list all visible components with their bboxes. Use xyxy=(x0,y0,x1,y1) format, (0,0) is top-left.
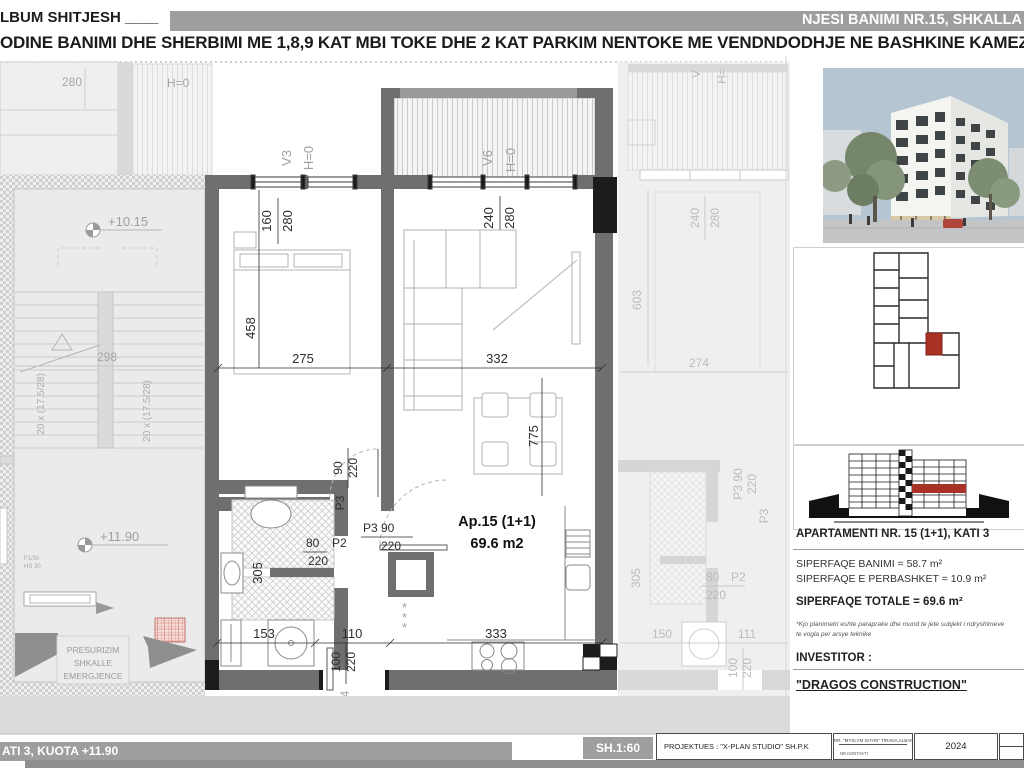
footer-designer: PROJEKTUES : "X-PLAN STUDIO" SH.P.K xyxy=(656,733,832,760)
neighbor-dim-305: 305 xyxy=(629,568,643,588)
footer-stamp-box: RR. "MYSLYM SHYRI" TIRANA,ALBANIA NR.KON… xyxy=(833,733,913,760)
neighbor-dim-240: 240 xyxy=(688,208,702,228)
area-line-2: SIPERFAQE E PERBASHKET = 10.9 m² xyxy=(796,573,986,585)
stairwell-group: 280 H=0 +10.15 xyxy=(0,62,212,696)
dim-332: 332 xyxy=(486,351,508,366)
apartment-group: V3 H=0 160 280 V6 H=0 240 280 xyxy=(205,88,617,720)
footer-bottom-bar xyxy=(25,760,1024,768)
stamp-line-2: NR.KONTAKTI xyxy=(840,751,912,756)
building-section-diagram xyxy=(793,445,1024,530)
unit-highlight xyxy=(926,333,942,355)
dim-305: 305 xyxy=(250,562,265,584)
door-p3-bed-h: 220 xyxy=(346,458,360,478)
window-v3-w: 160 xyxy=(259,210,274,232)
neighbor-door-p2-code: P2 xyxy=(731,570,746,584)
disclaimer-line-1: *Kjo planimetri eshte paraprake dhe mund… xyxy=(796,621,1004,628)
label-h0-left: H=0 xyxy=(167,76,190,90)
neighbor-dim-280: 280 xyxy=(708,208,722,228)
neighbor-door-p2-h: 220 xyxy=(706,588,726,602)
window-v6-code: V6 xyxy=(480,150,495,166)
floor-plan-svg: 280 H=0 +10.15 xyxy=(0,56,790,740)
door-p2-w: 80 xyxy=(306,536,320,550)
toilet-tank xyxy=(245,486,297,498)
apartment-label: Ap.15 (1+1) xyxy=(458,514,536,530)
neighbor-door-p3-h: 220 xyxy=(745,474,759,494)
footer-scale: SH.1:60 xyxy=(583,737,653,759)
neighbor-dim-603: 603 xyxy=(630,290,644,310)
window-v6-hh: 280 xyxy=(502,207,517,229)
stair-note-left: 20 x (17.5/28) xyxy=(36,373,47,435)
stair-note-right: 20 x (17.5/28) xyxy=(142,380,153,442)
area-line-1: SIPERFAQE BANIMI = 58.7 m² xyxy=(796,558,942,570)
shaft-highlight xyxy=(155,618,185,642)
dim-275: 275 xyxy=(292,351,314,366)
neighbor-door-p4-w: 100 xyxy=(726,658,740,678)
dim-298: 298 xyxy=(97,350,117,364)
neighbor-door-p2-w: 80 xyxy=(706,570,720,584)
door-p4-h: 220 xyxy=(344,652,358,672)
door-p2-h: 220 xyxy=(308,554,328,568)
toilet-bowl xyxy=(251,500,291,528)
level-upper: +10.15 xyxy=(108,214,148,229)
door-p3-living-h: 220 xyxy=(381,539,401,553)
building-render-image xyxy=(823,68,1024,243)
column-checker xyxy=(583,644,617,670)
render-car xyxy=(943,219,963,228)
dim-775: 775 xyxy=(526,425,541,447)
dining-table xyxy=(474,393,562,474)
disclaimer-line-2: te vogla per arsye teknike xyxy=(796,631,871,638)
pressurization-1: PRESURIZIM xyxy=(67,645,119,655)
dim-458: 458 xyxy=(243,317,258,339)
window-v3-hh: 280 xyxy=(280,210,295,232)
section-core xyxy=(899,450,912,516)
neighbor-window-h: H= xyxy=(715,68,729,84)
door-p2-code: P2 xyxy=(332,536,347,550)
window-v6-w: 240 xyxy=(481,207,496,229)
investor-name: "DRAGOS CONSTRUCTION" xyxy=(796,678,967,692)
column xyxy=(593,177,617,233)
exterior-band xyxy=(0,696,790,734)
boiler-mark-3: * xyxy=(402,620,407,635)
window-v6 xyxy=(428,175,577,189)
banner-title: NJESI BANIMI NR.15, SHKALLA xyxy=(802,12,1022,28)
neighbor-door-p3-code: P3 xyxy=(757,508,771,523)
footer-year: 2024 xyxy=(914,733,998,760)
door-p3-bed-code: P3 xyxy=(333,495,347,510)
footer-floor-label: ATI 3, KUOTA +11.90 xyxy=(0,742,512,761)
sheet-subtitle: ODINE BANIMI DHE SHERBIMI ME 1,8,9 KAT M… xyxy=(0,33,1024,53)
neighbor-door-p3-label: P3 90 xyxy=(731,468,745,500)
apartment-area: 69.6 m2 xyxy=(470,536,523,552)
level-current: +11.90 xyxy=(100,529,139,544)
pressurization-2: SHKALLE xyxy=(74,658,113,668)
stamp-rule xyxy=(839,744,907,745)
key-plan-diagram xyxy=(793,247,1024,445)
dim-153: 153 xyxy=(253,626,275,641)
neighbor-dim-111: 111 xyxy=(738,627,757,641)
sheet: LBUM SHITJESH ____ NJESI BANIMI NR.15, S… xyxy=(0,0,1024,768)
section-floor-highlight xyxy=(912,484,966,493)
kitchen-counter xyxy=(447,506,595,674)
stamp-line-1: RR. "MYSLYM SHYRI" TIRANA,ALBANIA xyxy=(834,738,912,743)
pressurization-3: EMERGJENCE xyxy=(63,671,122,681)
window-v3-code: V3 xyxy=(279,150,294,166)
divider xyxy=(793,549,1024,550)
window-v3-h: H=0 xyxy=(301,146,316,170)
dim-280-left: 280 xyxy=(62,75,82,89)
dim-333: 333 xyxy=(485,626,507,641)
neighbor-window-code: V xyxy=(689,70,703,78)
banner-bar: NJESI BANIMI NR.15, SHKALLA xyxy=(170,11,1024,31)
shaft xyxy=(388,552,434,597)
bathroom-group xyxy=(219,480,348,670)
bench xyxy=(24,592,96,606)
window-v3 xyxy=(251,175,357,189)
album-title: LBUM SHITJESH ____ xyxy=(0,9,158,26)
divider xyxy=(793,669,1024,670)
neighbor-dim-274: 274 xyxy=(689,356,709,370)
sofa xyxy=(404,230,516,410)
door-p3-bed-w: 90 xyxy=(331,461,345,475)
door-p3-living-label: P3 90 xyxy=(363,521,395,535)
apartment-info-title: APARTAMENTI NR. 15 (1+1), KATI 3 xyxy=(796,528,989,540)
neighbor-dim-150: 150 xyxy=(652,627,672,641)
neighbor-unit-group: V H= 240 280 603 274 P3 90 220 P3 80 P2 xyxy=(618,62,790,719)
investor-label: INVESTITOR : xyxy=(796,652,872,664)
left-note-2: HS 30 xyxy=(24,564,41,570)
neighbor-door-p4-h: 220 xyxy=(740,658,754,678)
area-total: SIPERFAQE TOTALE = 69.6 m² xyxy=(796,596,963,608)
door-p4-w: 100 xyxy=(329,652,343,672)
footer-end-box xyxy=(999,733,1024,760)
dim-110: 110 xyxy=(342,626,363,641)
left-note-1: F1/30 xyxy=(24,556,40,562)
window-v6-h: H=0 xyxy=(503,148,518,172)
